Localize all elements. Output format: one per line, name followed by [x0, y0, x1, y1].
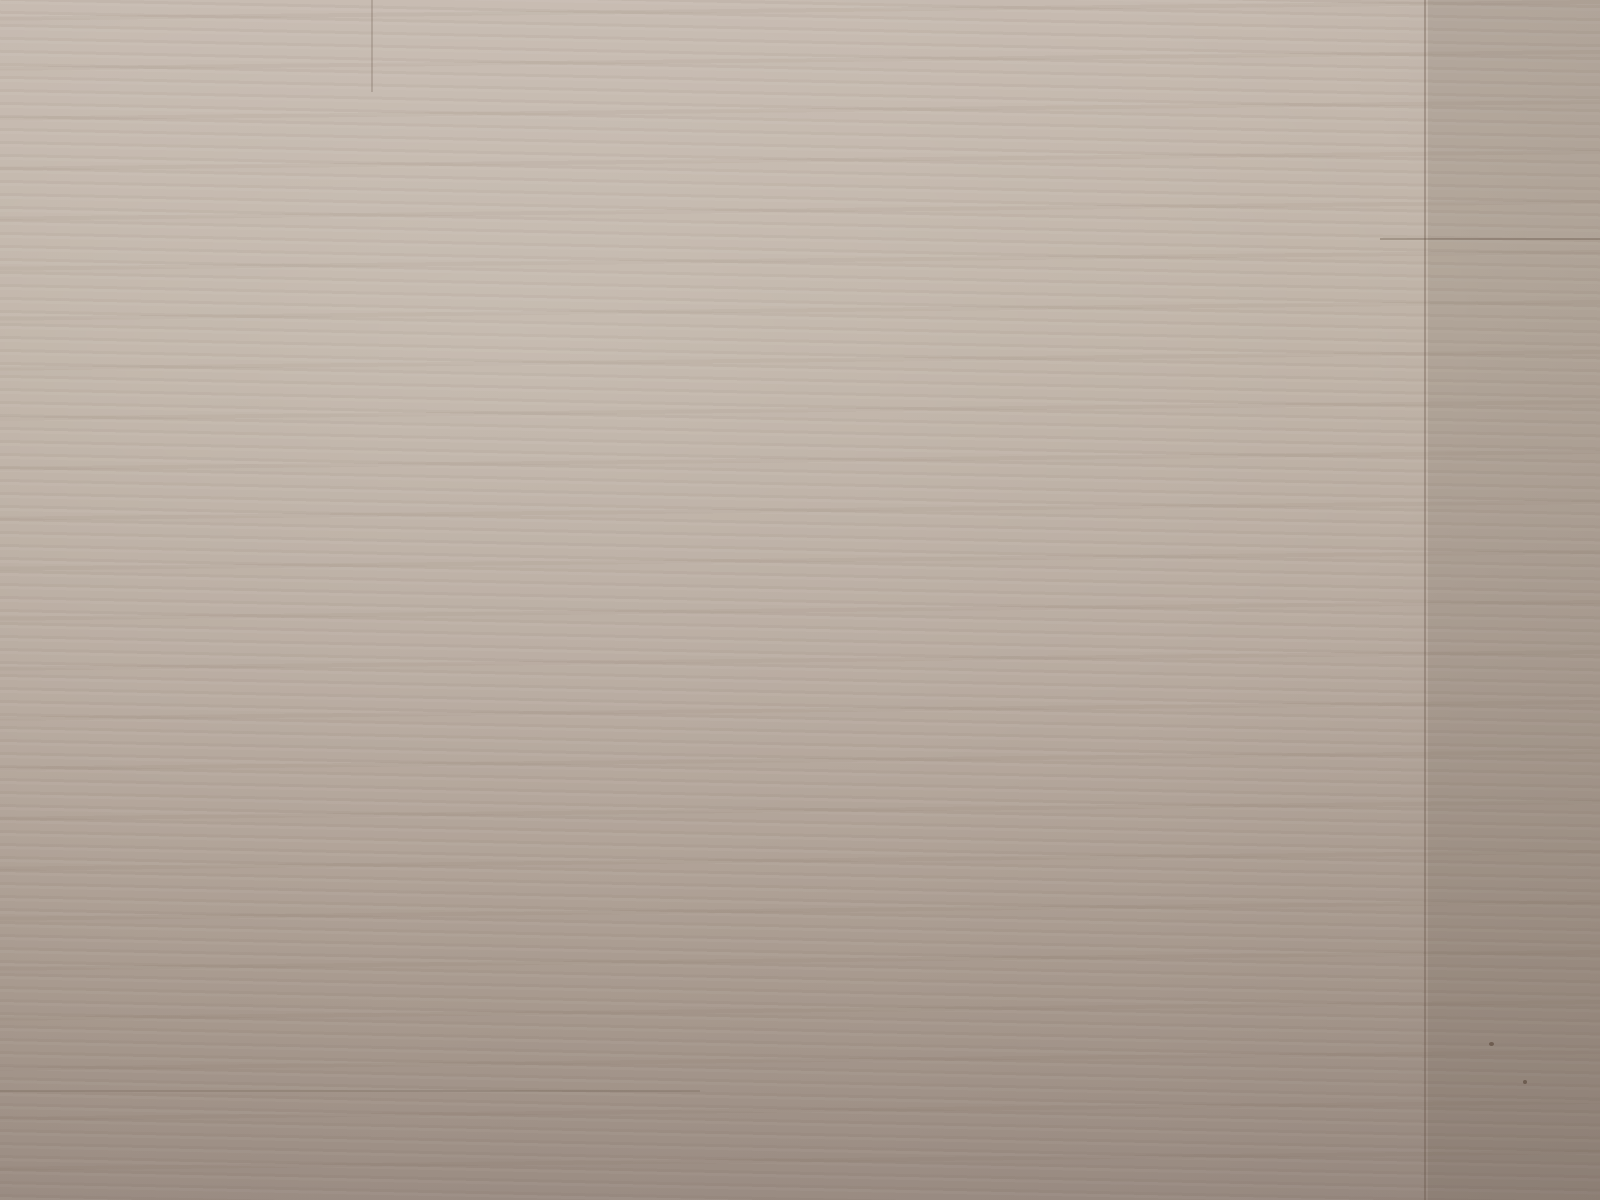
plank-seam [0, 1090, 700, 1092]
plank-seam [1424, 0, 1426, 1200]
plank-right-band [1428, 0, 1600, 1200]
clipboard [200, 90, 855, 745]
plank-seam [1380, 238, 1600, 240]
plank-seam [371, 0, 373, 92]
desk-scene: 3 2. NOTDI WA [0, 0, 1600, 1200]
